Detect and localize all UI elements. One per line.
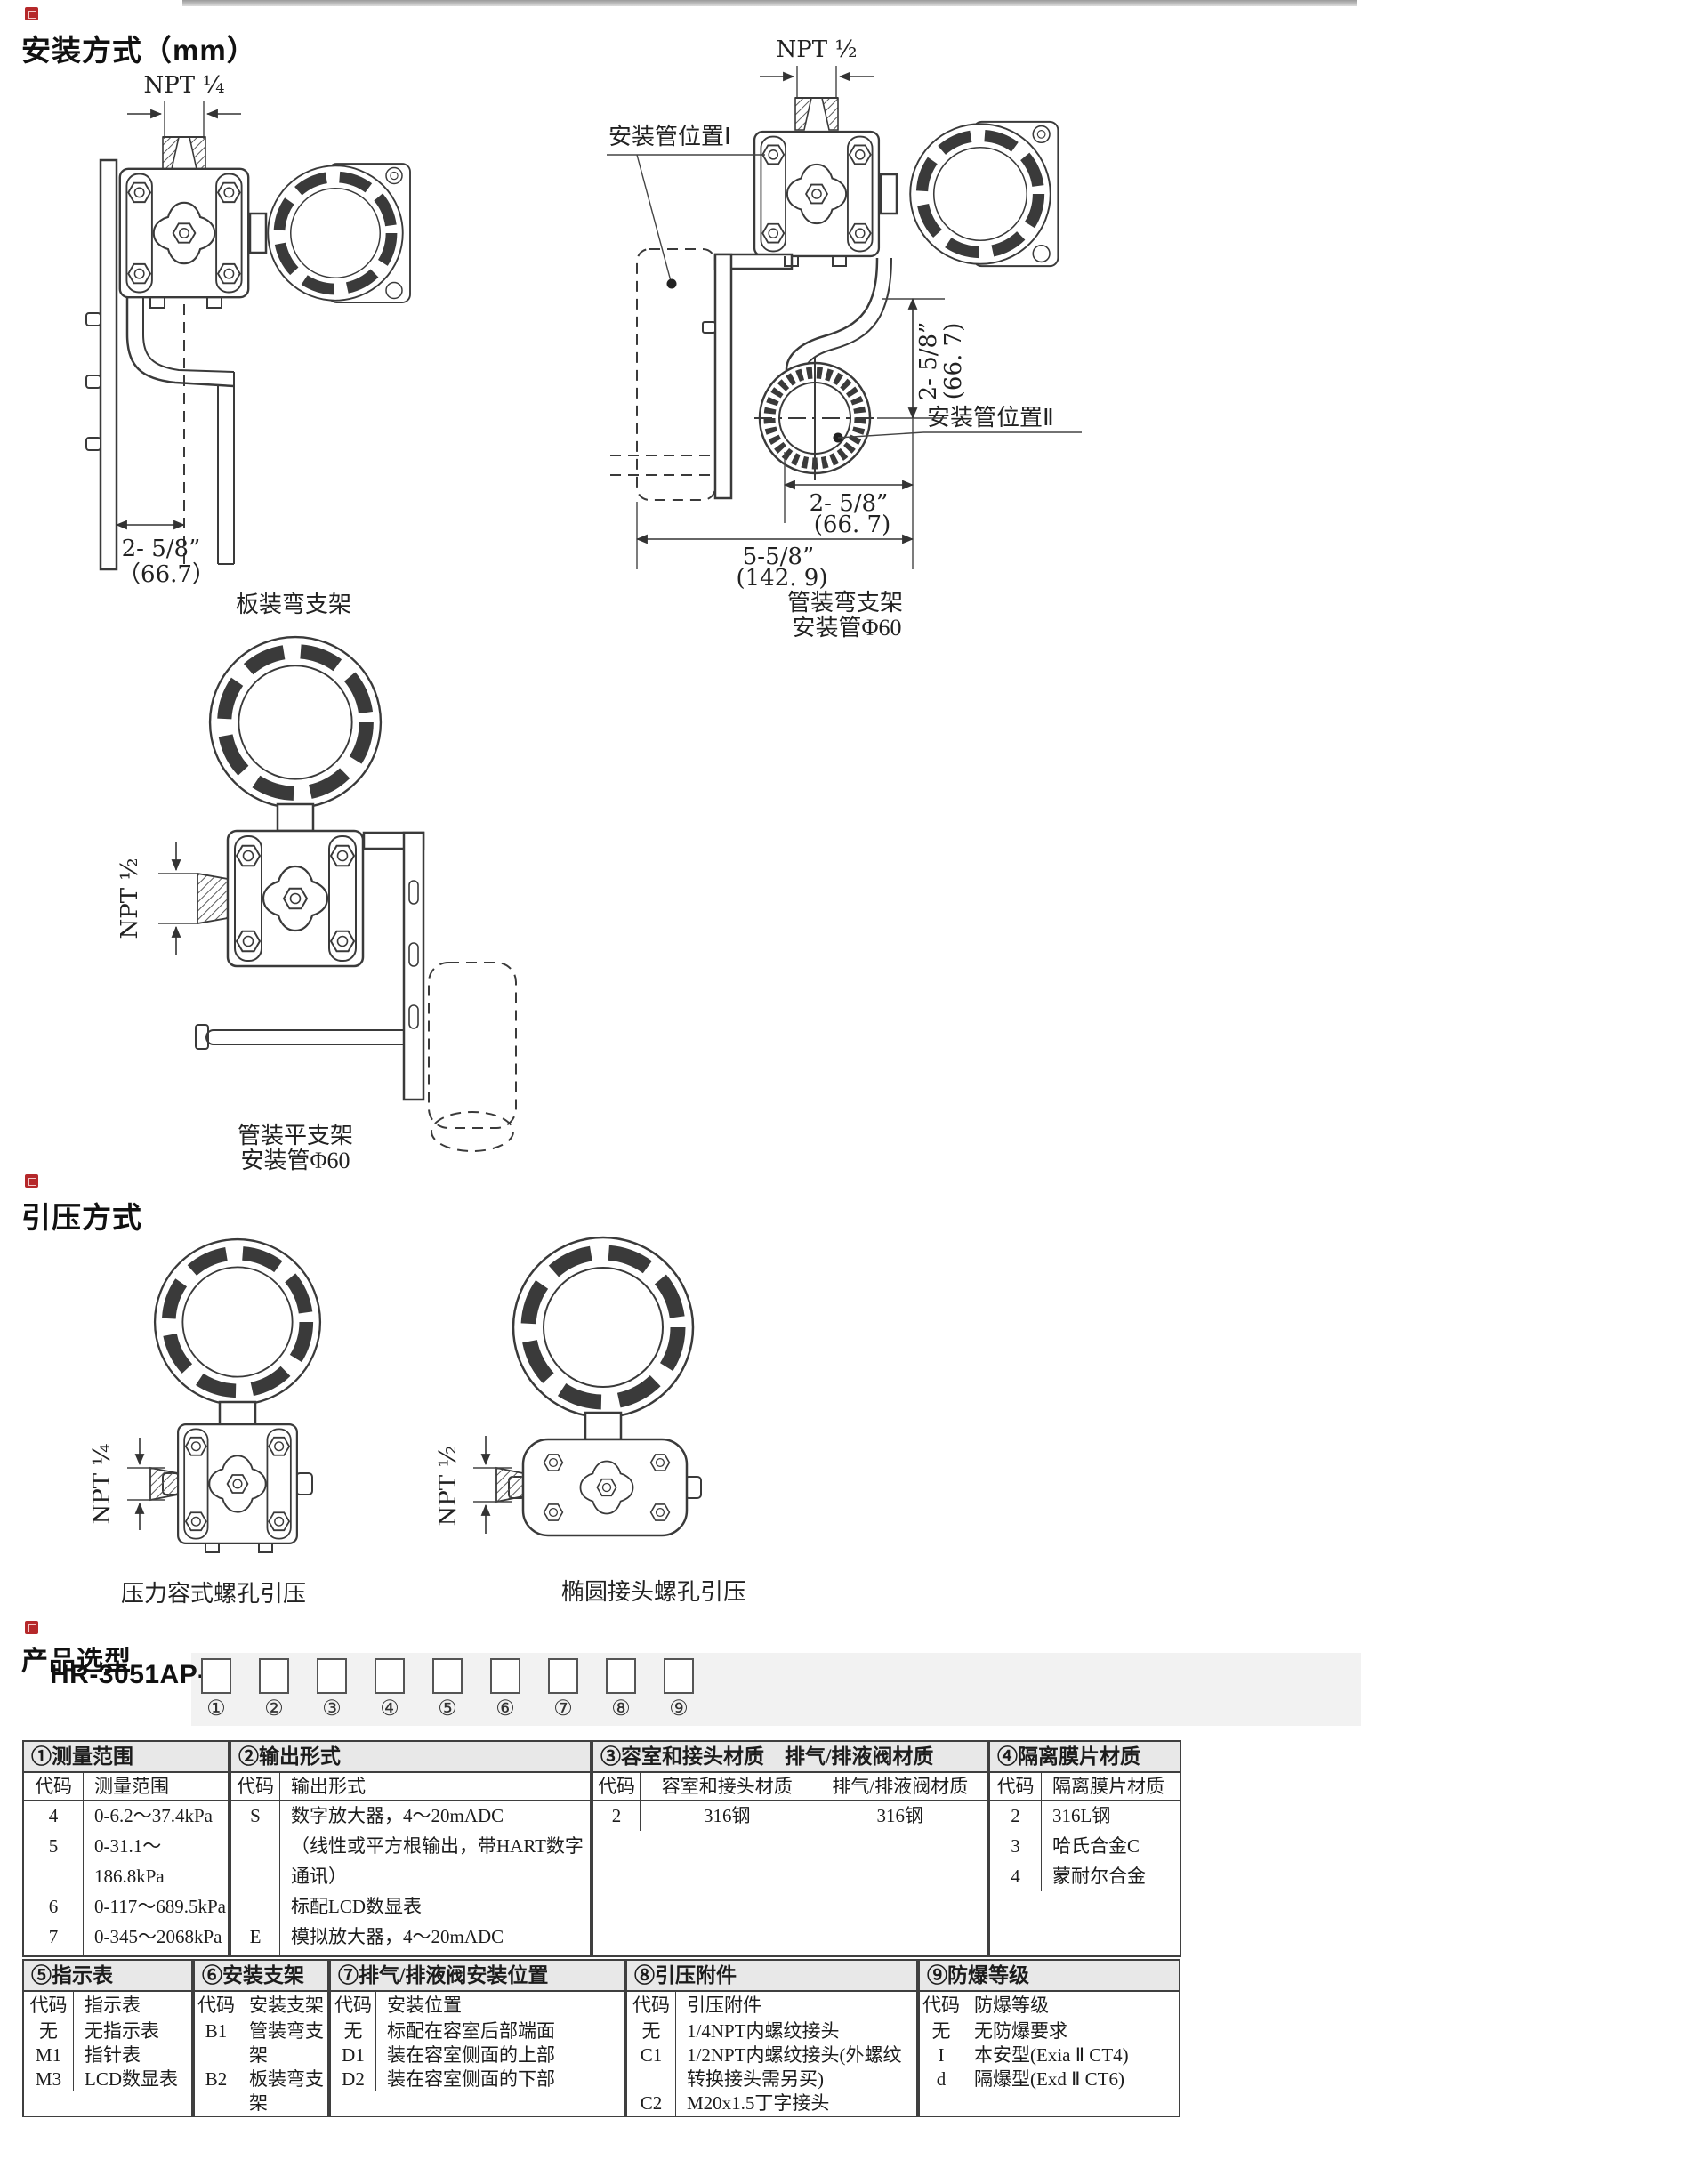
- column-header: 代码: [920, 1992, 963, 2019]
- table-title: ⑤指示表: [24, 1961, 191, 1992]
- cell: 指针表: [74, 2043, 191, 2067]
- model-code-box-9: [664, 1658, 694, 1694]
- cell: M3: [24, 2067, 74, 2091]
- drawing-caption: 管装平支架: [238, 1123, 353, 1148]
- cell: 316钢: [640, 1801, 814, 1831]
- model-slot-number-1: ①: [187, 1696, 246, 1721]
- table-output-form: ②输出形式代码输出形式S数字放大器，4～20mADC （线性或平方根输出，带HA…: [230, 1740, 592, 1957]
- cell: B2: [195, 2067, 238, 2116]
- cell: 隔爆型(Exd Ⅱ CT6): [963, 2067, 1179, 2091]
- table-header-row: 代码指示表: [24, 1992, 191, 2019]
- table-title: ⑨防爆等级: [920, 1961, 1179, 1992]
- drawing-caption: 管装弯支架: [787, 590, 903, 616]
- npt-size-label: NPT ½: [435, 1445, 462, 1526]
- table-grid: 代码安装支架B1管装弯支架B2板装弯支架B3管装平支架: [195, 1992, 327, 2116]
- table-grid: 代码输出形式S数字放大器，4～20mADC （线性或平方根输出，带HART数字通…: [231, 1773, 590, 1955]
- dim1-mm: (66. 7): [814, 512, 890, 538]
- table-measuring-range: ①测量范围代码测量范围40-6.2～37.4kPa50-31.1～186.8kP…: [22, 1740, 230, 1957]
- table-grid: 代码容室和接头材质排气/排液阀材质2316钢316钢: [593, 1773, 987, 1955]
- pressure-chamber: [178, 1424, 297, 1543]
- section-bullet-icon: [25, 1174, 38, 1188]
- table-title: ④隔离膜片材质: [990, 1742, 1180, 1773]
- table-row: B2板装弯支架: [195, 2067, 327, 2116]
- cell: 板装弯支架: [238, 2067, 327, 2116]
- cell: B1: [195, 2019, 238, 2067]
- npt-size-label: NPT ¼: [89, 1443, 116, 1524]
- column-header: 安装位置: [376, 1992, 624, 2019]
- cell: 标配在容室后部端面: [376, 2019, 624, 2043]
- model-code-box-4: [375, 1658, 405, 1694]
- neck-connector: [250, 214, 266, 253]
- cell: 4: [990, 1861, 1042, 1891]
- model-slot-number-7: ⑦: [534, 1696, 592, 1721]
- side-port: [197, 874, 228, 923]
- column-header: 测量范围: [84, 1773, 228, 1800]
- npt-size-label: NPT ½: [117, 858, 143, 939]
- table-header-row: 代码输出形式: [231, 1773, 590, 1801]
- cell: 管装弯支架: [238, 2019, 327, 2067]
- column-header: 引压附件: [676, 1992, 916, 2019]
- cell: 316L钢: [1042, 1801, 1180, 1831]
- column-header: 代码: [990, 1773, 1042, 1800]
- table-indicator: ⑤指示表代码指示表无无指示表M1指针表M3LCD数显表: [22, 1959, 193, 2117]
- table-row: 无无指示表: [24, 2019, 191, 2043]
- cell: 无: [920, 2019, 963, 2043]
- model-code-box-6: [490, 1658, 520, 1694]
- cell: I: [920, 2043, 963, 2067]
- table-row: B1管装弯支架: [195, 2019, 327, 2067]
- table-title: ⑥安装支架: [195, 1961, 327, 1992]
- table-pressure-lead-accessory: ⑧引压附件代码引压附件无1/4NPT内螺纹接头C11/2NPT内螺纹接头(外螺纹…: [625, 1959, 918, 2117]
- cell: 316钢: [814, 1801, 987, 1831]
- cell: 0-31.1～186.8kPa: [84, 1831, 228, 1891]
- cell: 蒙耐尔合金: [1042, 1861, 1180, 1891]
- cell: 1/2NPT内螺纹接头(外螺纹转换接头需另买): [676, 2043, 916, 2091]
- table-title: ⑧引压附件: [627, 1961, 916, 1992]
- table-header-row: 代码测量范围: [24, 1773, 228, 1801]
- cell: 4: [24, 1801, 84, 1831]
- cell: C1: [627, 2043, 676, 2091]
- transmitter-flange: [228, 831, 363, 966]
- drawing-caption2: 安装管Φ60: [240, 1148, 350, 1173]
- flat-bracket-mount-drawing: NPT ½ 管装平支架 安装管Φ60: [107, 623, 525, 1179]
- drawing-caption: 椭圆接头螺孔引压: [561, 1579, 746, 1605]
- table-grid: 代码指示表无无指示表M1指针表M3LCD数显表: [24, 1992, 191, 2116]
- model-code-box-2: [259, 1658, 289, 1694]
- cell: E: [231, 1922, 280, 1955]
- clamp-bolt-rod: [206, 1030, 411, 1044]
- column-header: 代码: [195, 1992, 238, 2019]
- cell: 无: [627, 2019, 676, 2043]
- section-bullet-icon: [25, 1621, 38, 1634]
- table-row: 2316钢316钢: [593, 1801, 987, 1831]
- cell: 0-6.2～37.4kPa: [84, 1801, 228, 1831]
- cell: 0-1170～6895kPa: [84, 1952, 228, 1955]
- table-title: ②输出形式: [231, 1742, 590, 1773]
- cell: 模拟放大器，4～20mADC 线性输出（指针表或LCD数显表另选）: [280, 1922, 590, 1955]
- dim-vert-inches: 2- 5/8”: [915, 322, 942, 401]
- table-row: C2M20x1.5丁字接头: [627, 2091, 916, 2116]
- drawing-caption: 板装弯支架: [236, 592, 351, 617]
- chamber-thread-lead-drawing: NPT ¼ 压力容式螺孔引压: [85, 1217, 378, 1617]
- cell: 本安型(Exia Ⅱ CT4): [963, 2043, 1179, 2067]
- pipe-bracket-mount-drawing: NPT ½ 安装管位置Ⅰ: [578, 36, 1112, 641]
- table-grid: 代码引压附件无1/4NPT内螺纹接头C11/2NPT内螺纹接头(外螺纹转换接头需…: [627, 1992, 916, 2116]
- column-header: 代码: [331, 1992, 376, 2019]
- electronics-housing: [268, 164, 410, 302]
- model-code-box-1: [201, 1658, 231, 1694]
- dim-mm: （66.7）: [117, 561, 215, 588]
- model-slot-number-5: ⑤: [418, 1696, 477, 1721]
- section-title-mounting: 安装方式（mm）: [21, 27, 257, 69]
- table-row: M1指针表: [24, 2043, 191, 2067]
- cell: S: [231, 1801, 280, 1922]
- electronics-housing: [155, 1239, 320, 1405]
- bracket-curve: [786, 258, 891, 374]
- model-code-box-3: [317, 1658, 347, 1694]
- cell: 数字放大器，4～20mADC （线性或平方根输出，带HART数字通讯） 标配LC…: [280, 1801, 590, 1922]
- mounting-bracket: [127, 297, 234, 564]
- transmitter-flange: [120, 169, 248, 297]
- model-code-slots: ①②③④⑤⑥⑦⑧⑨: [0, 1658, 1708, 1722]
- table-header-row: 代码容室和接头材质排气/排液阀材质: [593, 1773, 987, 1801]
- cell: 2: [593, 1801, 640, 1831]
- neck-connector: [585, 1413, 621, 1439]
- table-diaphragm-material: ④隔离膜片材质代码隔离膜片材质2316L钢3哈氏合金C4蒙耐尔合金: [988, 1740, 1181, 1957]
- table-title: ①测量范围: [24, 1742, 228, 1773]
- table-row: C11/2NPT内螺纹接头(外螺纹转换接头需另买): [627, 2043, 916, 2091]
- neck-connector: [220, 1402, 255, 1427]
- column-header: 代码: [593, 1773, 640, 1800]
- cell: 5: [24, 1831, 84, 1891]
- table-header-row: 代码安装位置: [331, 1992, 624, 2019]
- table-row: 无无防爆要求: [920, 2019, 1179, 2043]
- page-top-divider: [182, 0, 1357, 6]
- table-chamber-material: ③容室和接头材质 排气/排液阀材质代码容室和接头材质排气/排液阀材质2316钢3…: [592, 1740, 988, 1957]
- dim-vert-mm: (66. 7): [940, 323, 967, 399]
- drawing-caption: 压力容式螺孔引压: [121, 1581, 306, 1607]
- table-row: D2装在容室侧面的下部: [331, 2067, 624, 2091]
- electronics-housing: [210, 637, 381, 808]
- column-header: 容室和接头材质: [640, 1773, 814, 1800]
- table-row: 80-1170～6895kPa: [24, 1952, 228, 1955]
- table-header-row: 代码隔离膜片材质: [990, 1773, 1180, 1801]
- selection-tables-row2: ⑤指示表代码指示表无无指示表M1指针表M3LCD数显表 ⑥安装支架代码安装支架B…: [22, 1959, 1180, 2117]
- dim-inches: 2- 5/8”: [122, 536, 201, 562]
- cell: 无: [331, 2019, 376, 2043]
- panel-bracket-mount-drawing: NPT ¼ 2- 5/8” （66.7） 板装弯支架: [85, 71, 512, 623]
- section-bullet-icon: [25, 7, 38, 20]
- table-title: ⑦排气/排液阀安装位置: [331, 1961, 624, 1992]
- cell: d: [920, 2067, 963, 2091]
- cell: 装在容室侧面的下部: [376, 2067, 624, 2091]
- cell: M20x1.5丁字接头: [676, 2091, 916, 2116]
- table-title: ③容室和接头材质 排气/排液阀材质: [593, 1742, 987, 1773]
- model-slot-number-4: ④: [360, 1696, 419, 1721]
- table-row: M3LCD数显表: [24, 2067, 191, 2091]
- table-row: 60-117～689.5kPa: [24, 1891, 228, 1922]
- column-header: 指示表: [74, 1992, 191, 2019]
- side-port: [496, 1468, 523, 1502]
- table-row: 无1/4NPT内螺纹接头: [627, 2019, 916, 2043]
- cell: LCD数显表: [74, 2067, 191, 2091]
- wall-bolts: [86, 313, 101, 450]
- process-port: [795, 98, 838, 130]
- table-row: 无标配在容室后部端面: [331, 2019, 624, 2043]
- oval-adapter-lead-drawing: NPT ½ 椭圆接头螺孔引压: [427, 1210, 783, 1615]
- cell: D2: [331, 2067, 376, 2091]
- cell: 8: [24, 1952, 84, 1955]
- process-port: [163, 137, 205, 169]
- model-slot-number-6: ⑥: [476, 1696, 535, 1721]
- table-grid: 代码防爆等级无无防爆要求I本安型(Exia Ⅱ CT4)d隔爆型(Exd Ⅱ C…: [920, 1992, 1179, 2116]
- model-slot-number-9: ⑨: [649, 1696, 708, 1721]
- npt-size-label: NPT ½: [776, 36, 857, 63]
- drawing-caption2: 安装管Φ60: [792, 615, 901, 641]
- wall-section: [101, 160, 117, 569]
- table-grid: 代码安装位置无标配在容室后部端面D1装在容室侧面的上部D2装在容室侧面的下部: [331, 1992, 624, 2116]
- cell: 3: [990, 1831, 1042, 1861]
- column-header: 隔离膜片材质: [1042, 1773, 1180, 1800]
- table-row: 3哈氏合金C: [990, 1831, 1180, 1861]
- cell: 6: [24, 1891, 84, 1922]
- table-row: D1装在容室侧面的上部: [331, 2043, 624, 2067]
- table-row: 70-345～2068kPa: [24, 1922, 228, 1952]
- cell: 0-345～2068kPa: [84, 1922, 228, 1952]
- mounting-pipe-position1: [637, 249, 715, 500]
- column-header: 防爆等级: [963, 1992, 1179, 2019]
- table-row: d隔爆型(Exd Ⅱ CT6): [920, 2067, 1179, 2091]
- selection-tables-row1: ①测量范围代码测量范围40-6.2～37.4kPa50-31.1～186.8kP…: [22, 1740, 1181, 1957]
- column-header: 代码: [24, 1992, 74, 2019]
- table-explosion-proof-grade: ⑨防爆等级代码防爆等级无无防爆要求I本安型(Exia Ⅱ CT4)d隔爆型(Ex…: [918, 1959, 1180, 2117]
- table-header-row: 代码防爆等级: [920, 1992, 1179, 2019]
- cell: 哈氏合金C: [1042, 1831, 1180, 1861]
- electronics-housing: [513, 1237, 693, 1417]
- pipe-clamp-ring: [754, 358, 877, 480]
- table-row: S数字放大器，4～20mADC （线性或平方根输出，带HART数字通讯） 标配L…: [231, 1801, 590, 1922]
- column-header: 安装支架: [238, 1992, 327, 2019]
- bracket-plate: [364, 833, 423, 1100]
- cell: 无防爆要求: [963, 2019, 1179, 2043]
- column-header: 输出形式: [280, 1773, 590, 1800]
- table-header-row: 代码引压附件: [627, 1992, 916, 2019]
- model-slot-number-8: ⑧: [592, 1696, 650, 1721]
- table-row: 4蒙耐尔合金: [990, 1861, 1180, 1891]
- column-header: 排气/排液阀材质: [814, 1773, 987, 1800]
- neck-connector: [278, 804, 313, 831]
- cell: 1/4NPT内螺纹接头: [676, 2019, 916, 2043]
- cell: 0-117～689.5kPa: [84, 1891, 228, 1922]
- npt-size-label: NPT ¼: [143, 72, 224, 99]
- cell: 无指示表: [74, 2019, 191, 2043]
- mounting-pipe: [429, 963, 516, 1128]
- dim2-mm: (142. 9): [737, 565, 828, 592]
- cell: 装在容室侧面的上部: [376, 2043, 624, 2067]
- table-row: E模拟放大器，4～20mADC 线性输出（指针表或LCD数显表另选）: [231, 1922, 590, 1955]
- model-code-box-7: [548, 1658, 578, 1694]
- side-port: [150, 1468, 178, 1500]
- table-mounting-bracket: ⑥安装支架代码安装支架B1管装弯支架B2板装弯支架B3管装平支架: [193, 1959, 329, 2117]
- table-row: 2316L钢: [990, 1801, 1180, 1831]
- cell: D1: [331, 2043, 376, 2067]
- electronics-housing: [910, 122, 1058, 266]
- model-code-box-8: [606, 1658, 636, 1694]
- model-slot-number-3: ③: [302, 1696, 361, 1721]
- datasheet-page: 安装方式（mm） NPT ¼ 2- 5/8” （66.7） 板装: [0, 0, 1708, 2176]
- table-grid: 代码测量范围40-6.2～37.4kPa50-31.1～186.8kPa60-1…: [24, 1773, 228, 1955]
- table-header-row: 代码安装支架: [195, 1992, 327, 2019]
- oval-adapter-flange: [523, 1439, 687, 1535]
- table-row: 50-31.1～186.8kPa: [24, 1831, 228, 1891]
- table-grid: 代码隔离膜片材质2316L钢3哈氏合金C4蒙耐尔合金: [990, 1773, 1180, 1955]
- leader-dot: [667, 279, 677, 289]
- model-slot-number-2: ②: [245, 1696, 303, 1721]
- table-row: I本安型(Exia Ⅱ CT4): [920, 2043, 1179, 2067]
- table-vent-drain-position: ⑦排气/排液阀安装位置代码安装位置无标配在容室后部端面D1装在容室侧面的上部D2…: [329, 1959, 625, 2117]
- model-code-box-5: [432, 1658, 463, 1694]
- cell: 无: [24, 2019, 74, 2043]
- table-row: 40-6.2～37.4kPa: [24, 1801, 228, 1831]
- column-header: 代码: [24, 1773, 84, 1800]
- transmitter-flange: [754, 132, 879, 256]
- column-header: 代码: [627, 1992, 676, 2019]
- neck-connector: [881, 174, 897, 214]
- cell: M1: [24, 2043, 74, 2067]
- cell: C2: [627, 2091, 676, 2116]
- callout-pipe-position-1: 安装管位置Ⅰ: [608, 124, 731, 149]
- column-header: 代码: [231, 1773, 280, 1800]
- cell: 2: [990, 1801, 1042, 1831]
- cell: 7: [24, 1922, 84, 1952]
